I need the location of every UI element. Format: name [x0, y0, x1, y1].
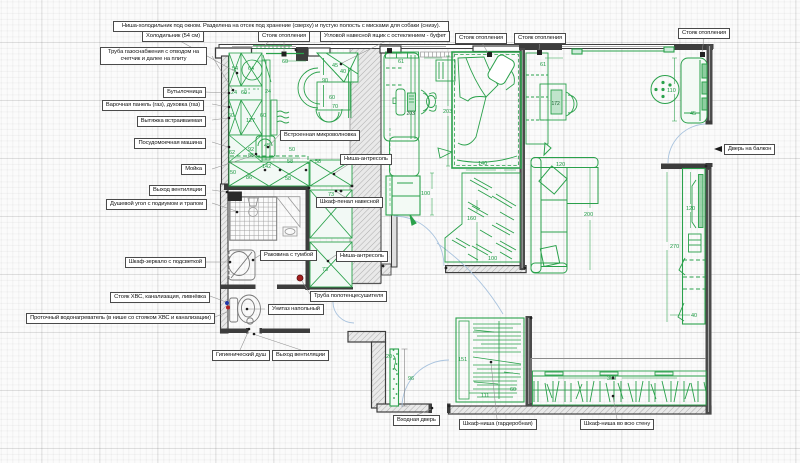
- svg-text:50: 50: [289, 147, 295, 153]
- svg-text:58: 58: [285, 176, 291, 182]
- svg-text:58: 58: [287, 159, 293, 165]
- svg-text:45: 45: [690, 111, 696, 117]
- svg-text:270: 270: [670, 244, 679, 250]
- svg-text:60: 60: [329, 95, 335, 101]
- svg-text:24: 24: [265, 89, 271, 95]
- svg-text:60: 60: [241, 90, 247, 96]
- svg-text:60: 60: [260, 113, 266, 119]
- svg-text:160: 160: [467, 216, 476, 222]
- svg-text:172: 172: [552, 101, 561, 107]
- svg-text:120: 120: [686, 206, 695, 212]
- svg-text:62: 62: [229, 150, 235, 156]
- svg-text:96: 96: [408, 376, 414, 382]
- svg-text:40: 40: [340, 69, 346, 75]
- svg-text:54: 54: [232, 66, 238, 72]
- svg-text:40: 40: [691, 313, 697, 319]
- svg-text:127: 127: [246, 118, 255, 124]
- svg-text:120: 120: [556, 162, 565, 168]
- svg-text:86: 86: [246, 175, 252, 181]
- svg-text:64: 64: [248, 66, 254, 72]
- svg-text:203: 203: [443, 109, 452, 115]
- svg-text:45: 45: [332, 63, 338, 69]
- svg-text:151: 151: [458, 357, 467, 363]
- svg-text:61: 61: [540, 62, 546, 68]
- svg-text:111: 111: [481, 393, 489, 399]
- svg-text:60: 60: [510, 387, 516, 393]
- svg-text:110: 110: [667, 88, 676, 94]
- svg-text:90: 90: [322, 78, 328, 84]
- svg-text:73: 73: [322, 267, 328, 273]
- svg-text:200: 200: [584, 212, 593, 218]
- svg-text:70: 70: [332, 104, 338, 110]
- svg-text:50: 50: [230, 170, 236, 176]
- svg-text:24: 24: [231, 90, 237, 96]
- svg-text:60: 60: [282, 59, 288, 65]
- svg-text:100: 100: [421, 191, 430, 197]
- svg-text:142: 142: [262, 164, 271, 170]
- svg-text:203: 203: [407, 111, 416, 117]
- svg-text:58: 58: [315, 159, 321, 165]
- svg-text:61: 61: [398, 59, 404, 65]
- svg-text:20: 20: [386, 354, 392, 360]
- svg-text:100: 100: [488, 256, 497, 262]
- svg-text:140: 140: [478, 161, 487, 167]
- svg-text:309: 309: [607, 376, 616, 382]
